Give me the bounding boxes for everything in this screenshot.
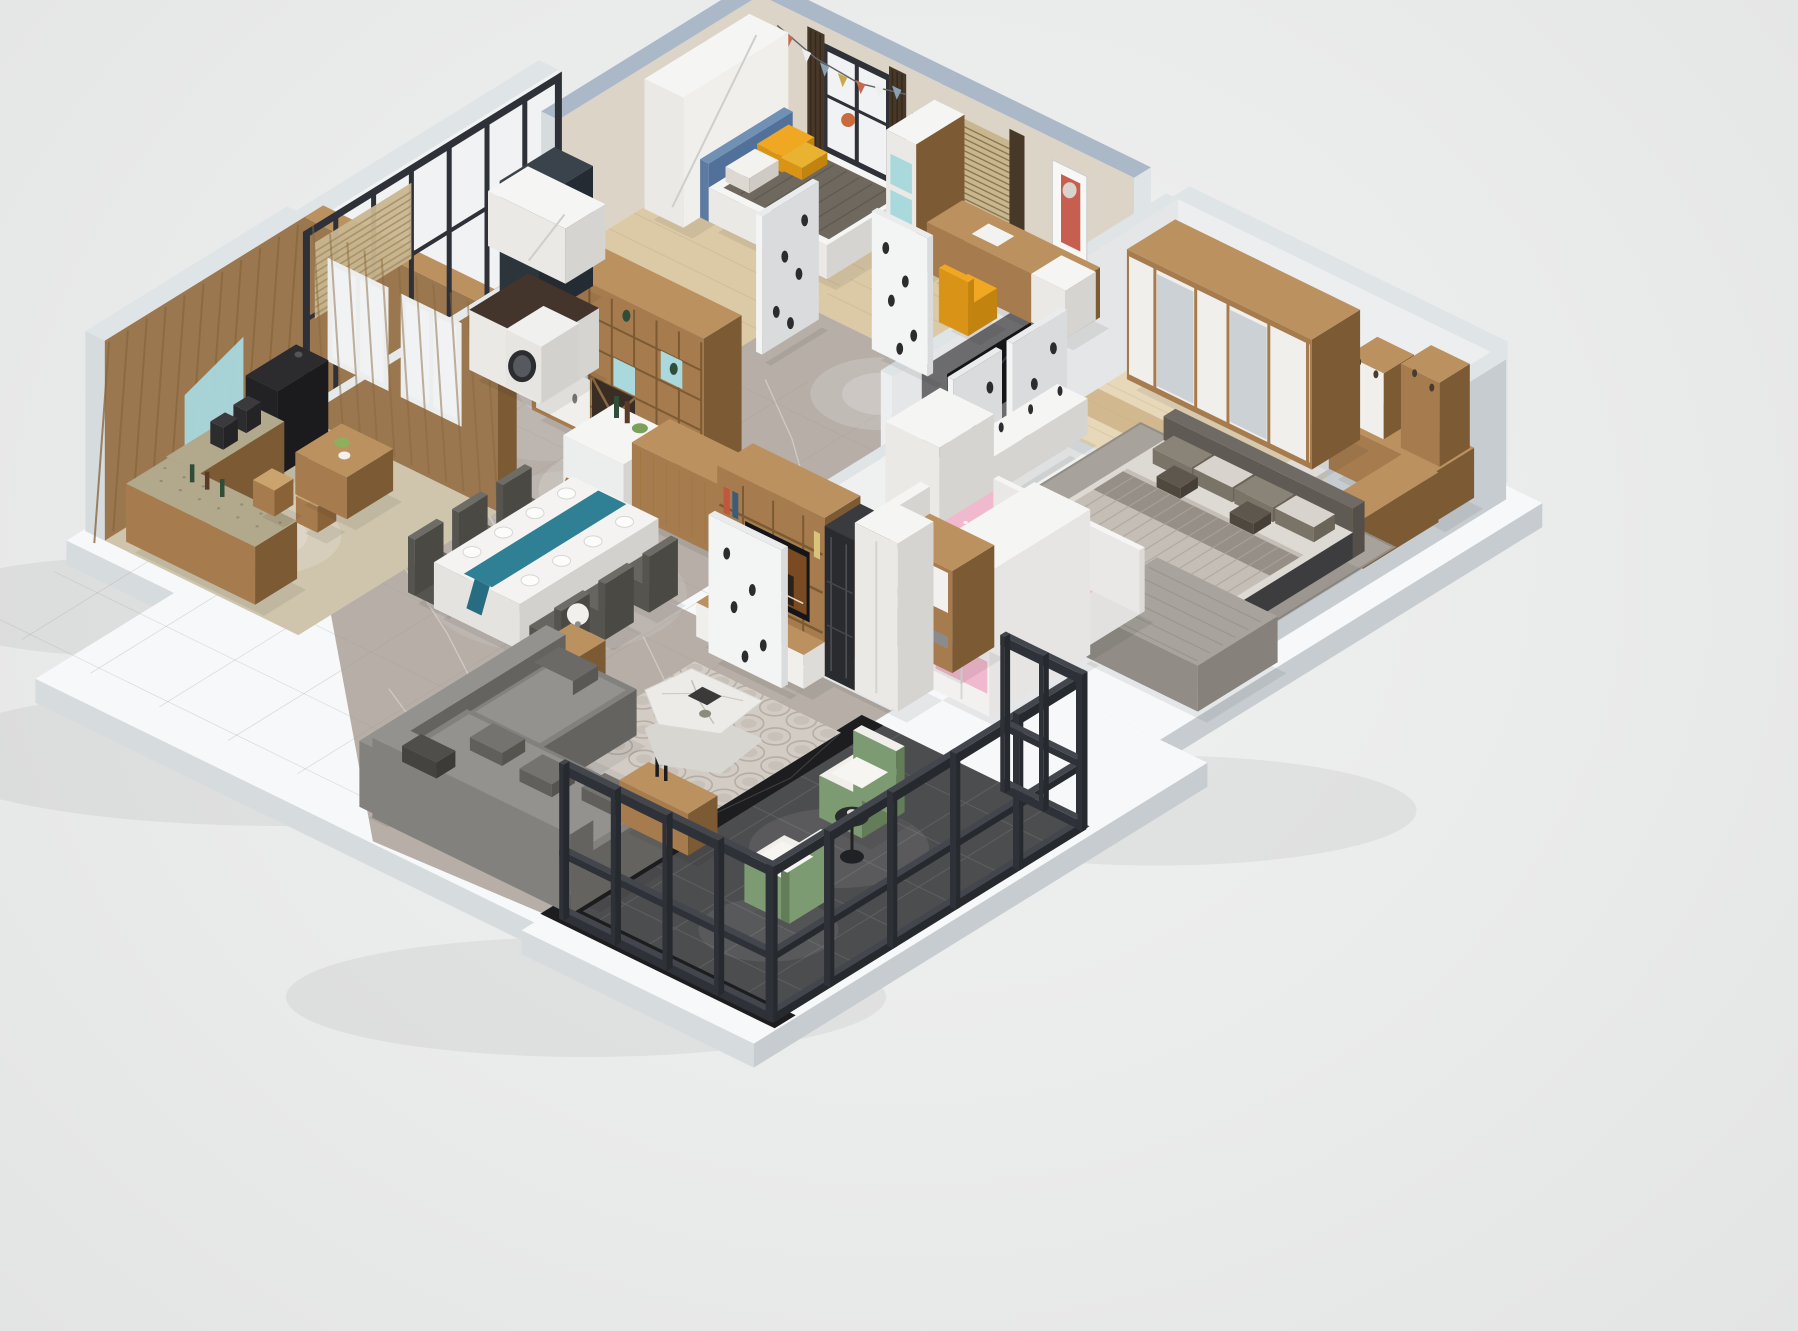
- white-speckled-door: [872, 208, 942, 388]
- floor-plan-render: [0, 0, 1798, 1331]
- apartment-3d-floor-plan: [0, 0, 1798, 1331]
